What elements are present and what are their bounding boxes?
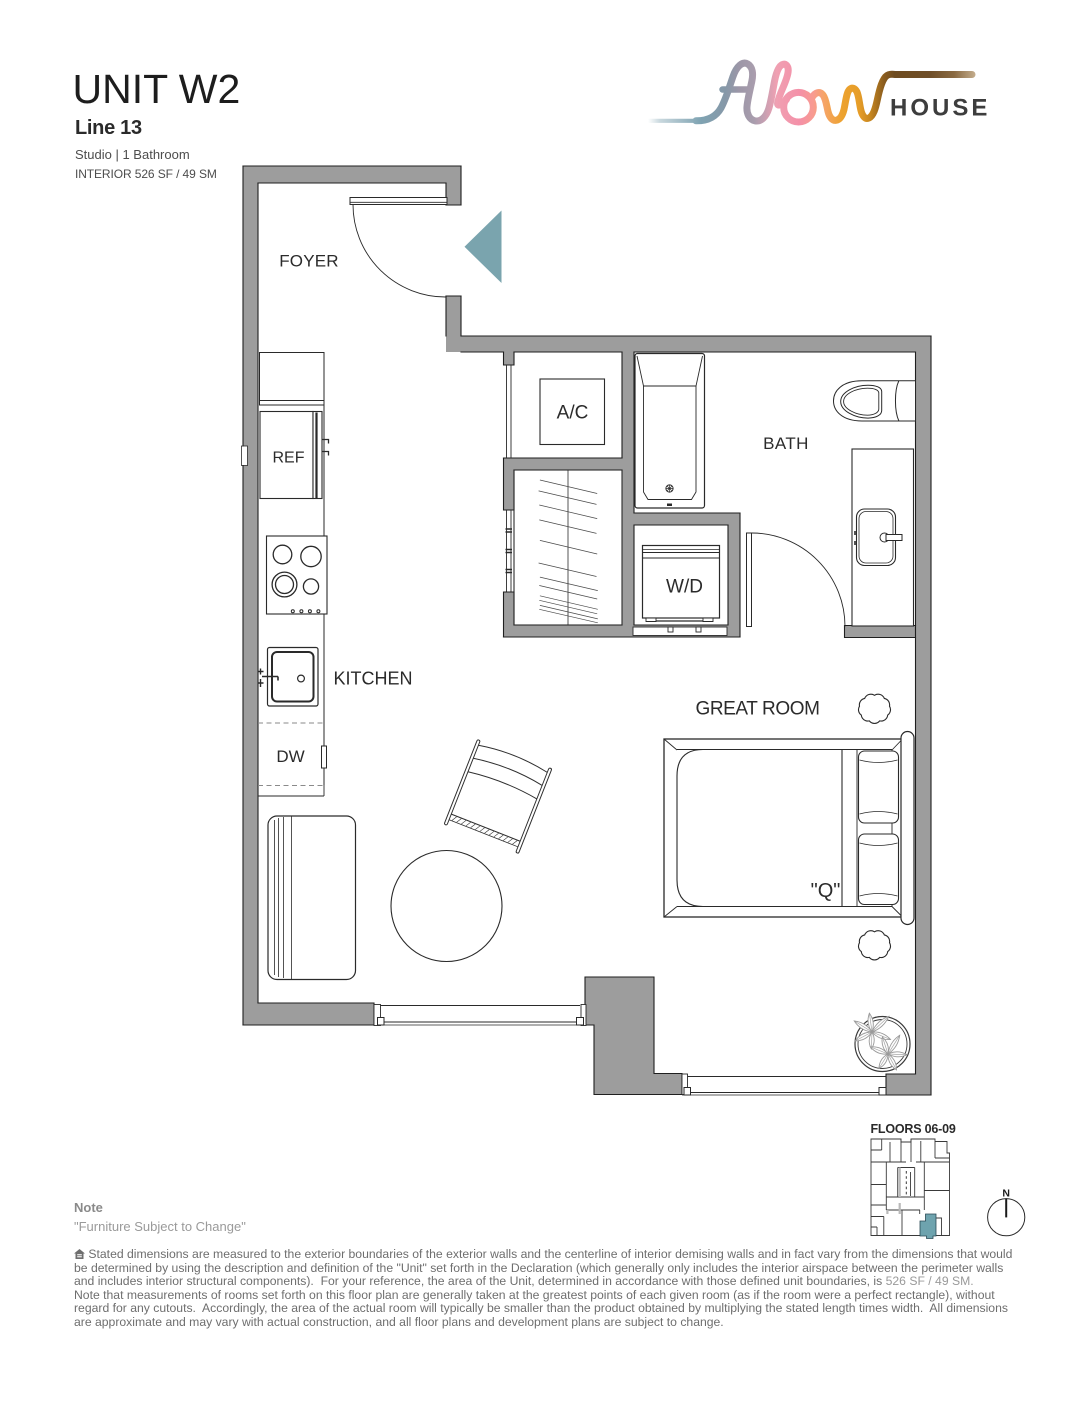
svg-text:REF: REF bbox=[273, 450, 305, 467]
svg-text:HOUSE: HOUSE bbox=[890, 95, 990, 122]
svg-text:DW: DW bbox=[276, 747, 304, 766]
svg-text:BATH: BATH bbox=[763, 434, 809, 453]
svg-text:"Q": "Q" bbox=[811, 880, 841, 902]
svg-text:GREAT ROOM: GREAT ROOM bbox=[695, 699, 819, 720]
svg-text:FOYER: FOYER bbox=[279, 252, 339, 271]
svg-text:KITCHEN: KITCHEN bbox=[333, 669, 412, 689]
svg-text:A/C: A/C bbox=[557, 403, 589, 424]
svg-text:W/D: W/D bbox=[666, 577, 703, 598]
svg-text:N: N bbox=[1002, 1188, 1010, 1200]
svg-text:FLOORS 06-09: FLOORS 06-09 bbox=[871, 1122, 956, 1136]
